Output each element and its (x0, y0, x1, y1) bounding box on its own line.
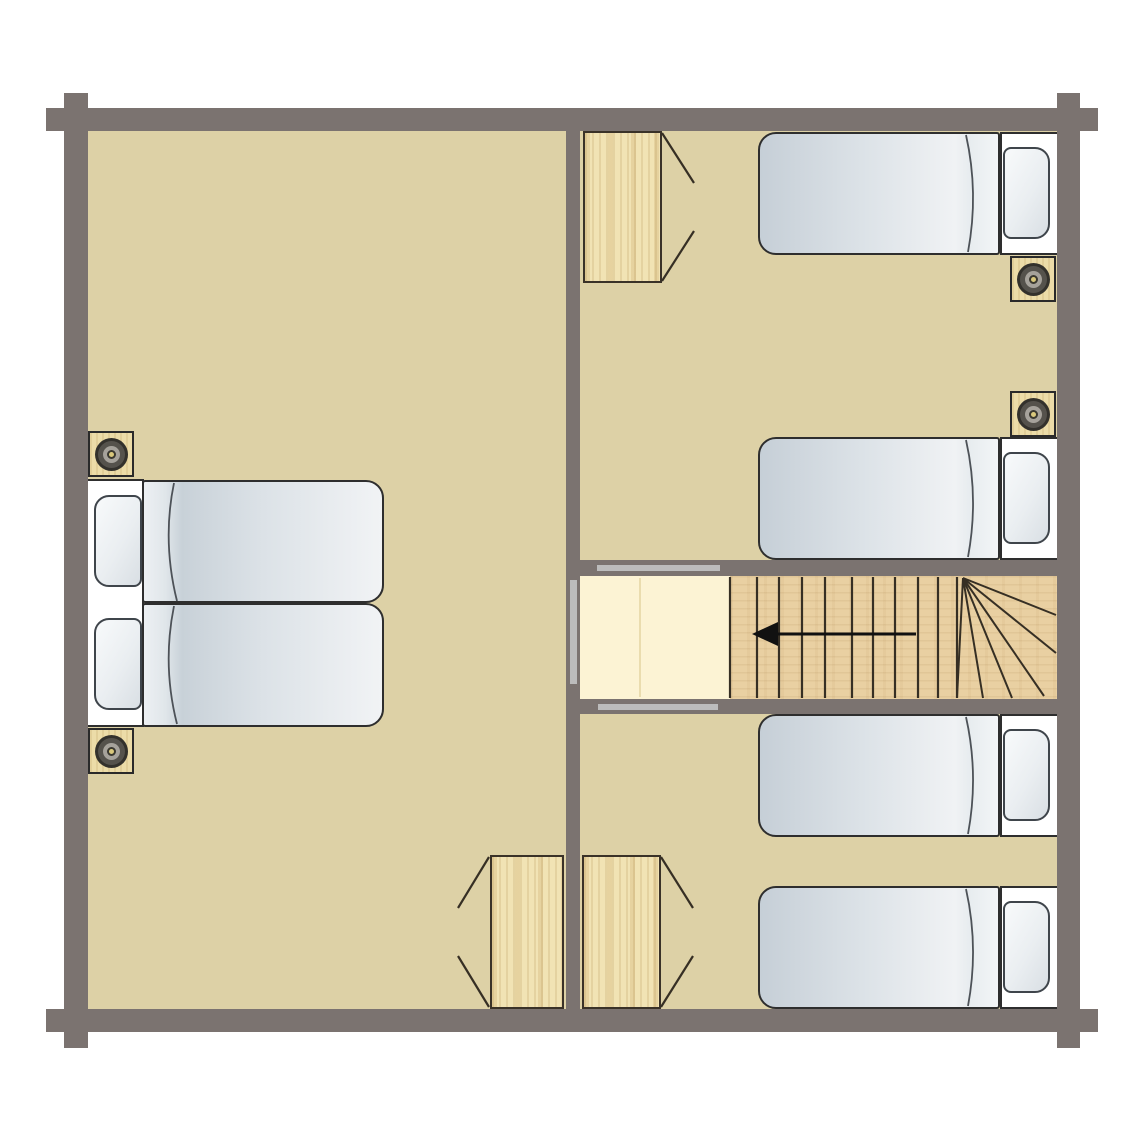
door-opening-master-bedroom (570, 580, 577, 684)
floor-plan (0, 0, 1145, 1145)
door-opening-corridor-south (598, 704, 718, 710)
marker-layer (0, 0, 1145, 1145)
door-opening-corridor-north (597, 565, 720, 571)
